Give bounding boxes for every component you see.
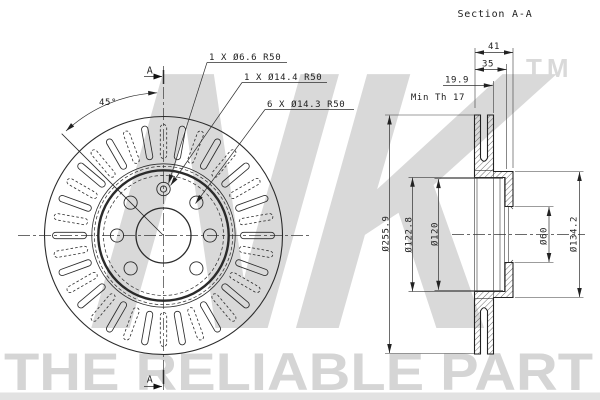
dim-width-inner: 35 [482,60,494,70]
angle-label: 45° [99,98,117,108]
vent-slot [58,259,92,277]
dim-outer-diameter: Ø255.9 [381,215,392,251]
callout-pin-hole-large: 1 X Ø14.4 R50 [244,72,322,83]
vent-slot [54,213,89,225]
technical-drawing-page: NK TM THE RELIABLE PART 45° A A [0,0,600,400]
slogan-watermark: THE RELIABLE PART [4,343,593,400]
dim-hub-diameter: Ø134.2 [569,216,580,252]
vent-slot [58,195,92,213]
dim-disc-thickness: 19.9 [445,76,469,86]
min-thickness-note: Min Th 17 [411,93,465,103]
section-title: Section A-A [457,9,532,20]
dim-hat-diameter-outer: Ø122.8 [404,216,415,252]
brake-disc-drawing: NK TM THE RELIABLE PART 45° A A [0,0,600,400]
bottom-band [0,393,600,400]
callout-bolt-holes: 6 X Ø14.3 R50 [267,99,345,110]
dim-width-total: 41 [488,42,500,52]
dim-hat-diameter-inner: Ø120 [430,222,441,246]
section-marker-a-bottom: A [147,375,154,386]
section-marker-a-top: A [147,66,154,77]
vent-slot [54,246,89,258]
dim-bore-diameter: Ø60 [539,227,550,245]
tm-watermark: TM [526,53,574,83]
callout-pin-hole-small: 1 X Ø6.6 R50 [209,52,281,63]
nk-logo-watermark: NK [76,0,570,400]
